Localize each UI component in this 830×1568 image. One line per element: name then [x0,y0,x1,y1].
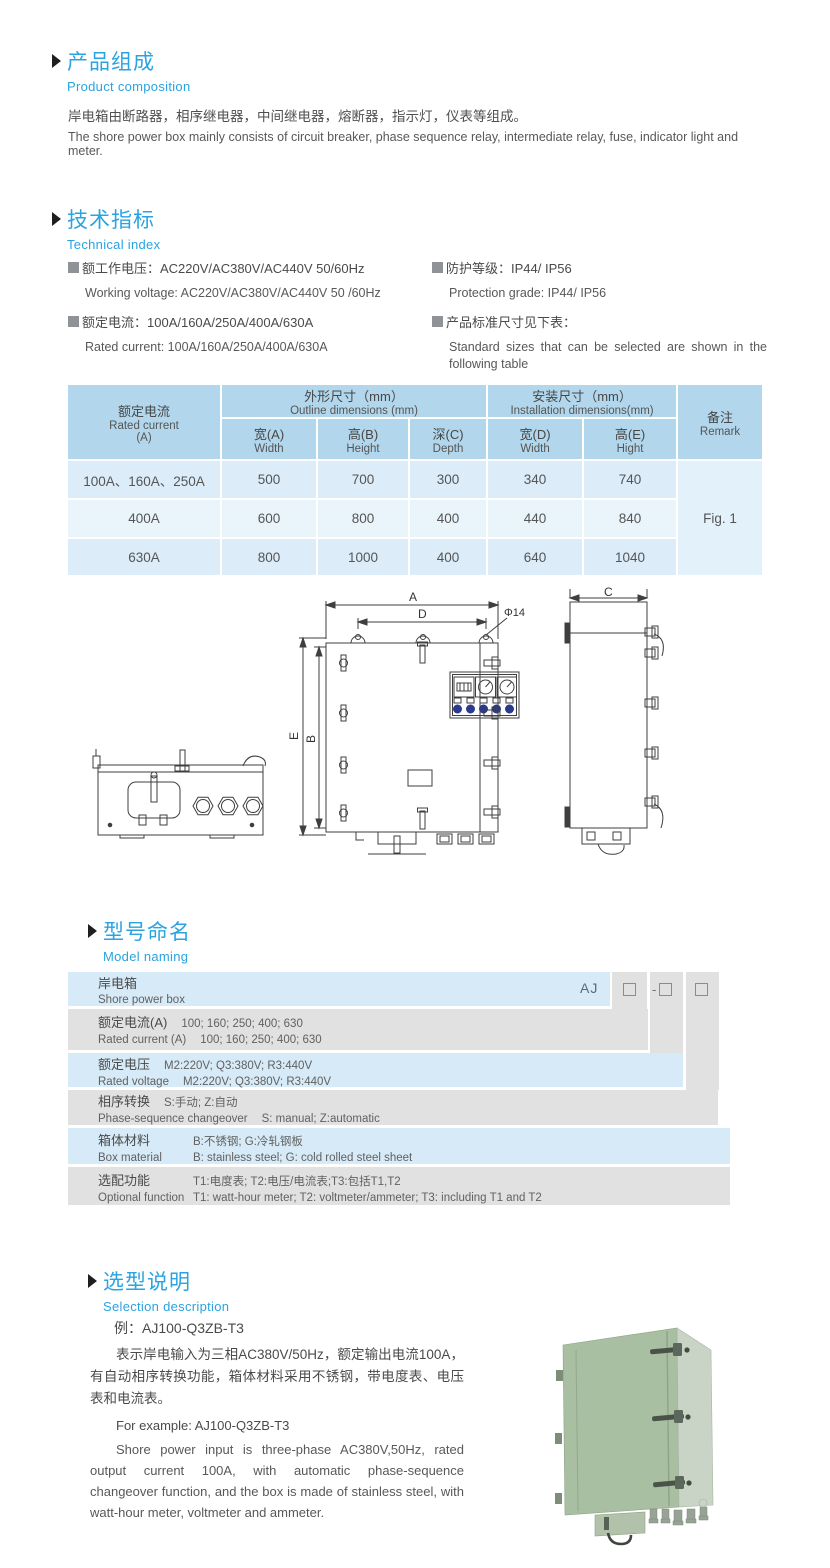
cell-height-b: 1000 [317,538,409,576]
cell-rated-current: 100A、160A、250A [67,460,221,499]
composition-paragraph-en: The shore power box mainly consists of c… [68,130,768,158]
hole-diameter-label: Φ14 [504,607,525,619]
model-prefix: AJ [580,980,598,996]
naming-row-optional-function: 选配功能T1:电度表; T2:电压/电流表;T3:包括T1,T2 Optiona… [68,1167,730,1205]
table-row: 100A、160A、250A 500 700 300 340 740 Fig. … [67,460,763,499]
cell-width-a: 500 [221,460,317,499]
spec-en: Protection grade: IP44/ IP56 [449,285,768,302]
sub-header-height-b: 高(B)Height [317,418,409,460]
cell-depth-c: 300 [409,460,487,499]
section-arrow-icon [88,1274,97,1288]
cell-width-d: 640 [487,538,583,576]
dim-label-b: B [304,735,318,743]
naming-row-rated-current: 额定电流(A)100; 160; 250; 400; 630 Rated cur… [68,1009,648,1050]
cell-depth-c: 400 [409,499,487,538]
dimension-drawing: A D Φ14 E B C [60,585,770,890]
cell-height-e: 740 [583,460,677,499]
selection-text-block: 例：AJ100-Q3ZB-T3 表示岸电输入为三相AC380V/50Hz，额定输… [90,1318,464,1523]
cell-width-d: 340 [487,460,583,499]
cell-depth-c: 400 [409,538,487,576]
cell-height-b: 700 [317,460,409,499]
cell-width-d: 440 [487,499,583,538]
naming-row-box-material: 箱体材料B:不锈钢; G:冷轧钢板 Box materialB: stainle… [68,1128,730,1164]
product-photo [540,1295,820,1565]
section-arrow-icon [52,212,61,226]
section-title-en: Selection description [103,1299,229,1314]
spec-zh: 额工作电压：AC220V/AC380V/AC440V 50/60Hz [82,258,365,277]
section-title-zh: 选型说明 [103,1266,191,1296]
naming-row-phase-sequence: 相序转换S:手动; Z:自动 Phase-sequence changeover… [68,1090,718,1125]
table-row: 400A 600 800 400 440 840 [67,499,763,538]
spec-item: 额定电流：100A/160A/250A/400A/630A Rated curr… [68,312,418,356]
code-box-1 [623,983,636,996]
spec-en: Working voltage: AC220V/AC380V/AC440V 50… [85,285,418,302]
spec-item: 额工作电压：AC220V/AC380V/AC440V 50/60Hz Worki… [68,258,418,302]
section-product-composition-header: 产品组成 Product composition [52,46,190,94]
section-arrow-icon [88,924,97,938]
group-header-outline: 外形尺寸（mm） Outline dimensions (mm) [221,384,487,418]
cell-rated-current: 630A [67,538,221,576]
group-header-installation: 安装尺寸（mm） Installation dimensions(mm) [487,384,677,418]
cell-height-e: 840 [583,499,677,538]
bullet-square-icon [432,316,443,327]
spec-zh: 额定电流：100A/160A/250A/400A/630A [82,312,313,331]
dim-label-d: D [418,607,427,621]
code-dash: - [652,982,656,997]
spec-en: Standard sizes that can be selected are … [449,339,767,373]
cell-width-a: 600 [221,499,317,538]
code-box-2 [659,983,672,996]
model-naming-diagram: 岸电箱 Shore power box AJ - 额定电流(A)100; 160… [68,972,730,1208]
spec-zh: 产品标准尺寸见下表： [446,312,576,331]
cell-rated-current: 400A [67,499,221,538]
bullet-square-icon [68,316,79,327]
selection-paragraph-en: Shore power input is three-phase AC380V,… [90,1439,464,1523]
code-box-3 [695,983,708,996]
section-arrow-icon [52,54,61,68]
bullet-square-icon [68,262,79,273]
col-header-remark: 备注 Remark [677,384,763,460]
sub-header-width-a: 宽(A)Width [221,418,317,460]
dimensions-table: 额定电流 Rated current (A) 外形尺寸（mm） Outline … [66,383,764,577]
naming-row-product: 岸电箱 Shore power box [68,972,610,1006]
technical-spec-list: 额工作电压：AC220V/AC380V/AC440V 50/60Hz Worki… [68,258,768,378]
bottom-view [93,749,265,838]
cell-height-b: 800 [317,499,409,538]
table-row: 630A 800 1000 400 640 1040 [67,538,763,576]
cell-remark: Fig. 1 [677,460,763,576]
composition-paragraph-zh: 岸电箱由断路器，相序继电器，中间继电器，熔断器，指示灯，仪表等组成。 [68,105,768,125]
cell-height-e: 1040 [583,538,677,576]
dim-label-c: C [604,585,613,599]
spec-item: 防护等级：IP44/ IP56 Protection grade: IP44/ … [432,258,768,302]
section-title-en: Technical index [67,237,160,252]
section-title-zh: 型号命名 [103,916,191,946]
front-view [299,601,519,854]
dim-label-a: A [409,590,417,604]
naming-row-rated-voltage: 额定电压M2:220V; Q3:380V; R3:440V Rated volt… [68,1053,683,1087]
section-model-naming-header: 型号命名 Model naming [88,916,191,964]
col-header-rated-current: 额定电流 Rated current (A) [67,384,221,460]
cell-width-a: 800 [221,538,317,576]
side-view [565,589,663,854]
section-title-zh: 技术指标 [67,204,155,234]
section-title-en: Model naming [103,949,191,964]
spec-en: Rated current: 100A/160A/250A/400A/630A [85,339,418,356]
spec-item: 产品标准尺寸见下表： Standard sizes that can be se… [432,312,768,373]
selection-paragraph-zh: 表示岸电输入为三相AC380V/50Hz，额定输出电流100A，有自动相序转换功… [90,1344,464,1410]
spec-zh: 防护等级：IP44/ IP56 [446,258,572,277]
shore-power-box-image [555,1328,713,1544]
selection-example-en: For example: AJ100-Q3ZB-T3 [90,1418,464,1433]
section-technical-index-header: 技术指标 Technical index [52,204,160,252]
section-title-zh: 产品组成 [67,46,155,76]
selection-example-zh: 例：AJ100-Q3ZB-T3 [90,1318,464,1338]
sub-header-width-d: 宽(D)Width [487,418,583,460]
sub-header-depth-c: 深(C)Depth [409,418,487,460]
bullet-square-icon [432,262,443,273]
dim-label-e: E [287,732,301,740]
catalog-page: { "colors": { "accent": "#2aa3e0", "text… [0,0,830,1568]
sub-header-height-e: 高(E)Hight [583,418,677,460]
section-selection-description-header: 选型说明 Selection description [88,1266,229,1314]
section-title-en: Product composition [67,79,190,94]
